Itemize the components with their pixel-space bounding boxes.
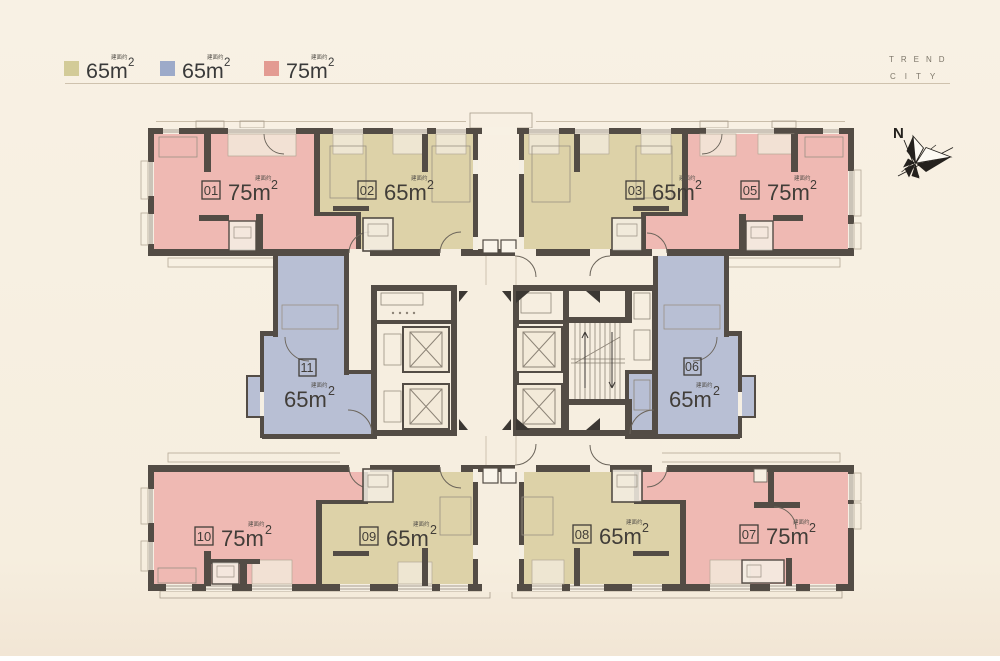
svg-text:75m: 75m <box>286 59 328 83</box>
svg-text:建面约: 建面约 <box>413 520 430 528</box>
svg-text:75m: 75m <box>767 180 810 205</box>
svg-text:2: 2 <box>224 57 230 69</box>
svg-text:2: 2 <box>271 178 278 192</box>
svg-text:TREND: TREND <box>889 55 952 64</box>
svg-text:2: 2 <box>128 57 134 69</box>
svg-text:建面约: 建面约 <box>696 381 713 389</box>
svg-text:65m: 65m <box>652 180 695 205</box>
svg-text:建面约: 建面约 <box>793 518 810 526</box>
svg-text:2: 2 <box>695 178 702 192</box>
svg-text:2: 2 <box>810 178 817 192</box>
svg-text:05: 05 <box>743 183 757 198</box>
svg-text:65m: 65m <box>386 526 429 551</box>
svg-text:75m: 75m <box>221 526 264 551</box>
svg-text:2: 2 <box>265 523 272 537</box>
svg-text:建面约: 建面约 <box>794 174 811 182</box>
svg-text:10: 10 <box>197 529 211 544</box>
svg-text:06: 06 <box>685 360 699 374</box>
svg-text:65m: 65m <box>669 387 712 412</box>
svg-text:2: 2 <box>642 521 649 535</box>
svg-text:建面约: 建面约 <box>255 174 272 182</box>
svg-text:07: 07 <box>742 527 756 542</box>
svg-text:01: 01 <box>204 183 218 198</box>
svg-text:建面约: 建面约 <box>207 53 224 61</box>
svg-text:65m: 65m <box>599 524 642 549</box>
svg-text:2: 2 <box>427 178 434 192</box>
svg-text:CITY: CITY <box>890 72 944 81</box>
svg-text:11: 11 <box>301 361 314 375</box>
svg-text:65m: 65m <box>182 59 224 83</box>
svg-text:08: 08 <box>575 527 589 542</box>
svg-text:建面约: 建面约 <box>111 53 128 61</box>
svg-text:建面约: 建面约 <box>679 174 696 182</box>
svg-text:09: 09 <box>362 529 376 544</box>
svg-text:建面约: 建面约 <box>411 174 428 182</box>
svg-text:2: 2 <box>430 523 437 537</box>
svg-text:建面约: 建面约 <box>311 381 328 389</box>
svg-text:75m: 75m <box>766 524 809 549</box>
svg-text:65m: 65m <box>384 180 427 205</box>
svg-text:65m: 65m <box>284 387 327 412</box>
svg-text:建面约: 建面约 <box>626 518 643 526</box>
svg-text:2: 2 <box>328 57 334 69</box>
svg-text:N: N <box>893 125 904 142</box>
svg-text:2: 2 <box>809 521 816 535</box>
svg-text:02: 02 <box>360 183 374 198</box>
svg-text:建面约: 建面约 <box>248 520 265 528</box>
svg-text:03: 03 <box>628 183 642 198</box>
svg-text:65m: 65m <box>86 59 128 83</box>
svg-text:2: 2 <box>713 384 720 398</box>
svg-text:建面约: 建面约 <box>311 53 328 61</box>
svg-text:2: 2 <box>328 384 335 398</box>
svg-text:75m: 75m <box>228 180 271 205</box>
